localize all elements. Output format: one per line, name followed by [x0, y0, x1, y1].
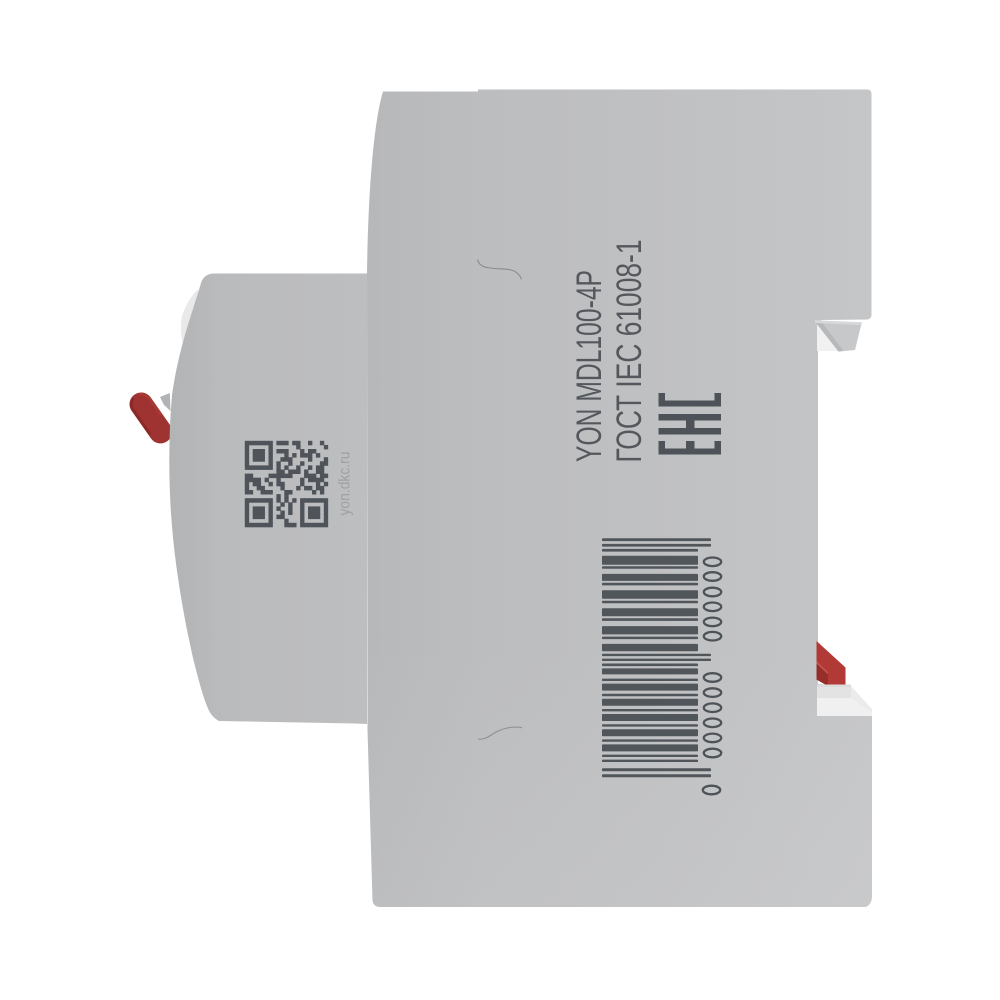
svg-text:YON MDL100-4P: YON MDL100-4P [570, 270, 609, 462]
svg-text:ГОСТ IEC 61008-1: ГОСТ IEC 61008-1 [610, 240, 649, 463]
svg-text:yon.dkc.ru: yon.dkc.ru [337, 452, 354, 516]
